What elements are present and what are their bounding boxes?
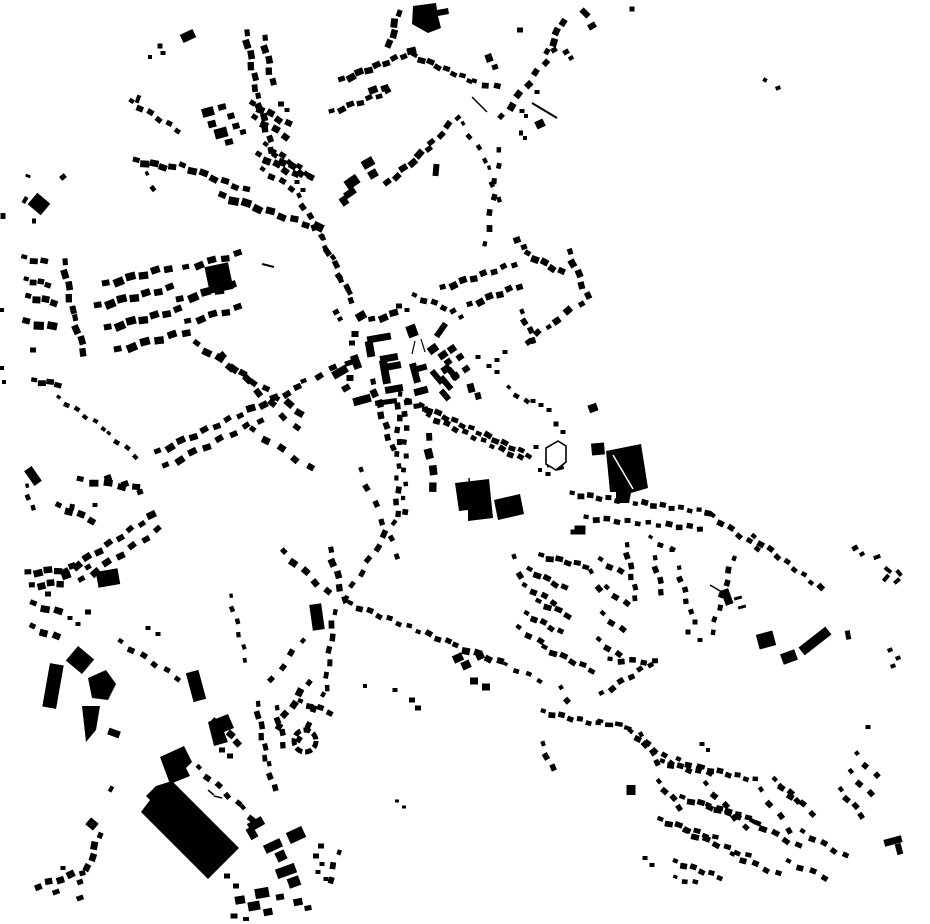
building <box>723 843 731 850</box>
building <box>575 526 586 535</box>
building <box>71 324 81 335</box>
building <box>82 414 89 421</box>
building <box>425 145 433 153</box>
building <box>573 560 581 566</box>
building <box>298 202 307 211</box>
building <box>274 115 284 124</box>
building <box>384 433 391 441</box>
building <box>295 687 305 697</box>
building <box>55 501 63 508</box>
building <box>680 863 688 870</box>
building <box>146 108 154 116</box>
building <box>783 558 791 565</box>
building <box>208 174 218 184</box>
building <box>262 743 268 751</box>
building <box>475 430 482 436</box>
wall-line <box>710 585 722 592</box>
building <box>448 281 458 291</box>
building <box>195 315 206 325</box>
building <box>314 372 324 381</box>
building <box>368 316 376 322</box>
building <box>76 476 84 482</box>
building <box>76 894 84 901</box>
building <box>513 393 520 400</box>
building <box>186 670 206 702</box>
building <box>605 722 613 727</box>
building <box>738 605 747 610</box>
building <box>489 443 495 449</box>
building <box>516 453 524 461</box>
building <box>395 800 399 803</box>
building <box>562 48 570 55</box>
building <box>707 768 714 774</box>
building <box>785 858 791 864</box>
building <box>256 701 261 707</box>
building <box>587 492 594 498</box>
building <box>687 799 696 806</box>
building <box>400 53 408 60</box>
building <box>333 609 338 616</box>
building <box>46 579 54 586</box>
building <box>476 355 481 359</box>
building <box>563 559 572 566</box>
building <box>653 759 660 767</box>
building <box>59 173 67 181</box>
building <box>545 324 552 330</box>
building <box>76 510 86 519</box>
building <box>40 605 50 613</box>
building <box>890 663 896 668</box>
building <box>466 301 473 308</box>
building <box>493 82 501 89</box>
building <box>243 917 249 921</box>
building <box>525 671 532 677</box>
wall-line <box>472 97 487 112</box>
building <box>29 622 37 629</box>
building <box>766 545 775 553</box>
wall-line <box>412 341 415 354</box>
building <box>32 296 40 303</box>
building <box>734 596 743 601</box>
building <box>254 710 262 719</box>
building <box>135 95 141 104</box>
building <box>84 563 92 570</box>
building <box>259 166 266 172</box>
building <box>542 752 550 761</box>
building <box>389 444 397 452</box>
building <box>405 324 419 339</box>
building <box>630 7 635 12</box>
building <box>258 400 269 410</box>
building <box>547 625 555 633</box>
building <box>47 321 58 330</box>
building <box>221 255 230 262</box>
building <box>442 65 450 72</box>
wall-line <box>532 103 557 118</box>
building <box>256 417 264 425</box>
building <box>515 624 522 630</box>
building <box>598 690 604 696</box>
building <box>140 651 149 659</box>
building <box>394 451 399 457</box>
building <box>401 496 405 500</box>
building <box>100 426 106 432</box>
building <box>587 21 597 30</box>
building <box>0 308 4 312</box>
building <box>866 725 871 729</box>
building <box>69 504 75 511</box>
building <box>530 255 540 264</box>
building <box>546 472 551 476</box>
building <box>267 675 275 683</box>
building <box>227 112 235 120</box>
building <box>513 236 522 244</box>
building <box>394 553 400 560</box>
building <box>496 163 502 170</box>
building <box>300 637 307 644</box>
building <box>306 463 315 472</box>
building <box>466 383 475 394</box>
building <box>845 630 851 640</box>
building <box>491 193 498 201</box>
building <box>559 652 568 660</box>
building <box>523 398 530 405</box>
wall-line <box>469 478 470 490</box>
building <box>507 102 517 112</box>
building <box>758 786 764 793</box>
building <box>550 46 558 53</box>
building <box>603 516 610 522</box>
building <box>693 620 698 625</box>
building <box>461 365 470 374</box>
building <box>599 610 606 617</box>
building <box>773 553 781 561</box>
building <box>781 837 790 846</box>
building <box>312 221 325 233</box>
building <box>706 748 710 752</box>
building <box>165 282 175 291</box>
building <box>496 291 505 299</box>
building <box>248 62 255 71</box>
building <box>640 660 647 666</box>
building <box>873 554 881 560</box>
building <box>316 870 321 874</box>
building <box>633 501 639 506</box>
building <box>547 264 557 273</box>
building <box>560 583 568 590</box>
building <box>697 799 706 806</box>
building <box>283 398 294 409</box>
building <box>378 313 389 323</box>
building <box>203 774 212 783</box>
building <box>686 630 691 635</box>
building <box>552 27 561 37</box>
building <box>577 716 584 722</box>
building <box>233 249 243 257</box>
building <box>656 778 662 785</box>
building <box>491 437 500 445</box>
building <box>30 348 36 353</box>
building <box>323 672 329 679</box>
building <box>66 646 94 674</box>
building <box>141 535 150 544</box>
building <box>375 613 383 621</box>
building <box>362 483 371 492</box>
building <box>301 188 306 192</box>
building <box>220 177 229 185</box>
building <box>678 504 684 509</box>
building <box>150 265 161 274</box>
building <box>140 288 151 297</box>
building <box>221 309 230 316</box>
building <box>673 875 678 880</box>
building <box>830 847 838 855</box>
building <box>628 574 634 581</box>
building <box>149 159 159 167</box>
building <box>608 685 617 694</box>
building <box>150 661 158 669</box>
building <box>46 379 54 385</box>
building <box>627 673 635 680</box>
building <box>346 100 355 108</box>
building <box>842 795 851 804</box>
building <box>251 72 259 81</box>
building <box>851 802 859 811</box>
building <box>173 304 183 313</box>
building <box>278 412 287 421</box>
building <box>277 443 287 453</box>
building <box>32 219 36 224</box>
building <box>356 100 364 107</box>
building <box>60 269 69 280</box>
building <box>618 625 627 633</box>
building <box>542 58 551 67</box>
building <box>363 684 367 688</box>
building <box>404 398 413 405</box>
building <box>328 558 338 568</box>
building <box>756 631 776 650</box>
building <box>424 629 433 637</box>
building <box>258 721 265 729</box>
building <box>838 786 844 793</box>
building <box>540 257 550 266</box>
building <box>434 636 442 643</box>
building <box>563 612 572 620</box>
landmark-building <box>160 746 192 784</box>
building <box>76 622 81 626</box>
building <box>146 510 157 520</box>
building <box>808 810 816 818</box>
building <box>484 292 494 301</box>
building <box>458 276 467 285</box>
building <box>499 262 507 270</box>
building <box>85 610 91 615</box>
building <box>700 742 705 746</box>
building <box>285 108 290 112</box>
building <box>516 571 525 580</box>
building <box>413 403 421 409</box>
building <box>174 127 181 134</box>
building <box>517 447 525 454</box>
building <box>370 378 376 385</box>
building <box>265 206 275 215</box>
building <box>113 345 122 352</box>
building <box>882 574 890 583</box>
building <box>287 875 302 889</box>
building <box>300 378 307 384</box>
building <box>628 562 635 570</box>
building <box>124 444 131 451</box>
building <box>390 54 399 62</box>
building <box>181 329 191 337</box>
building <box>579 661 587 668</box>
building <box>482 684 490 691</box>
building <box>301 566 311 576</box>
building <box>293 898 303 906</box>
building <box>30 280 37 286</box>
building <box>219 748 225 753</box>
building <box>426 58 435 66</box>
building <box>258 733 263 740</box>
building <box>332 308 340 315</box>
landmark-buildings <box>82 3 648 879</box>
building <box>336 584 343 592</box>
building <box>480 437 486 443</box>
building <box>309 603 325 630</box>
building <box>497 112 505 120</box>
building <box>703 780 709 787</box>
building <box>409 698 415 703</box>
building <box>194 261 205 271</box>
building <box>746 537 754 544</box>
building <box>677 565 682 570</box>
building <box>751 860 759 868</box>
building <box>414 148 425 159</box>
building <box>627 785 636 795</box>
building <box>687 508 693 514</box>
building <box>334 570 342 579</box>
building <box>101 557 112 567</box>
building <box>672 858 678 864</box>
building <box>320 691 326 698</box>
building <box>427 343 440 355</box>
building <box>396 9 403 17</box>
building <box>696 507 701 512</box>
building <box>676 525 683 531</box>
building <box>821 874 829 882</box>
building <box>229 430 238 438</box>
building <box>249 425 257 433</box>
building <box>30 258 38 264</box>
building <box>724 772 732 779</box>
building <box>255 150 263 157</box>
building <box>280 547 288 555</box>
building <box>384 39 393 49</box>
building <box>217 103 226 111</box>
landmark-building <box>88 670 116 700</box>
building <box>135 105 144 113</box>
building <box>229 593 233 598</box>
building <box>490 268 498 275</box>
building <box>566 716 574 723</box>
building <box>313 854 319 859</box>
building <box>282 390 292 399</box>
building <box>451 416 459 423</box>
building <box>534 118 546 129</box>
building <box>33 569 44 578</box>
building <box>532 572 541 580</box>
building <box>712 841 721 849</box>
building <box>491 64 498 71</box>
building <box>72 314 78 322</box>
building <box>369 388 379 398</box>
building <box>310 578 320 588</box>
building <box>415 629 421 635</box>
building <box>390 29 399 39</box>
building <box>558 18 567 28</box>
building <box>274 849 287 862</box>
landmark-building <box>82 706 100 742</box>
building <box>223 415 232 423</box>
building <box>451 426 459 434</box>
building <box>402 806 406 809</box>
building <box>22 317 31 325</box>
building <box>799 627 832 656</box>
building <box>208 309 218 318</box>
building <box>652 565 660 574</box>
building <box>454 114 461 121</box>
building <box>61 866 66 870</box>
building <box>568 55 574 61</box>
building <box>364 67 374 75</box>
building <box>486 209 492 216</box>
building <box>165 120 173 127</box>
building <box>855 779 864 788</box>
building <box>437 350 448 361</box>
building <box>636 665 644 673</box>
building <box>31 377 38 382</box>
building <box>81 552 92 562</box>
building <box>848 768 854 775</box>
building <box>484 53 493 63</box>
building <box>711 616 717 623</box>
building <box>584 291 592 300</box>
building <box>652 658 658 663</box>
building <box>539 618 547 626</box>
building <box>127 646 136 654</box>
building <box>30 504 36 510</box>
building <box>240 198 252 208</box>
building <box>607 656 613 661</box>
building <box>232 122 240 130</box>
building <box>255 92 261 99</box>
building <box>163 265 173 273</box>
building <box>533 328 542 337</box>
building <box>37 582 46 591</box>
building <box>470 275 478 283</box>
building <box>266 67 273 75</box>
building <box>375 398 397 406</box>
building <box>511 262 518 269</box>
wall-line <box>421 339 425 352</box>
building <box>262 384 271 392</box>
building <box>337 105 347 114</box>
building <box>595 495 602 502</box>
building <box>808 579 815 585</box>
building <box>520 317 529 326</box>
building <box>386 615 393 622</box>
building <box>452 652 464 663</box>
